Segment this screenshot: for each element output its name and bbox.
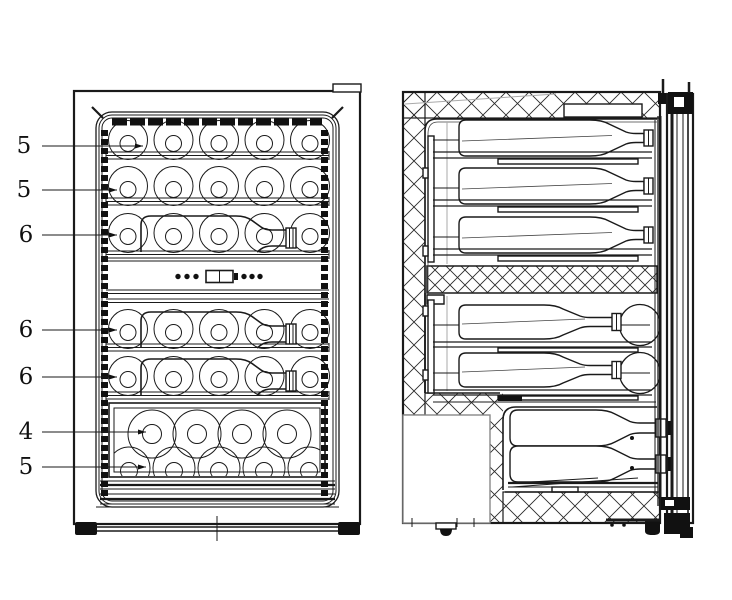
- panel-button[interactable]: [249, 274, 254, 279]
- left-foot: [75, 522, 97, 535]
- interior-lamp: [564, 104, 642, 117]
- wine-cooler-drawing: [0, 0, 732, 600]
- storage-bin: [108, 403, 330, 489]
- cabinet-outline: [74, 84, 361, 524]
- shelf-row-2: [106, 167, 330, 207]
- base-and-feet: [75, 516, 360, 541]
- leader-lines: [42, 144, 146, 470]
- part-label: 5: [11, 175, 37, 205]
- bottle-shelves: [96, 121, 339, 508]
- panel-button[interactable]: [175, 274, 180, 279]
- zone-divider: [427, 266, 657, 293]
- bottom-compartment: [505, 410, 672, 492]
- side-section-view: [403, 79, 693, 538]
- panel-button[interactable]: [184, 274, 189, 279]
- door-bottom-frame: [96, 481, 339, 507]
- panel-button[interactable]: [241, 274, 246, 279]
- figure-canvas: 5 5 6 6 6 4 5: [0, 0, 732, 600]
- lying-bottle: [141, 312, 286, 348]
- shelf-row-5: [106, 357, 330, 401]
- shelf-row-1: [106, 121, 330, 161]
- upper-zone-bottles: [459, 120, 653, 253]
- glass-door[interactable]: [655, 94, 693, 523]
- panel-button[interactable]: [193, 274, 198, 279]
- shelf-row-4: [106, 310, 330, 353]
- part-label: 6: [13, 315, 39, 345]
- part-label: 6: [13, 362, 39, 392]
- right-foot: [338, 522, 360, 535]
- lying-bottle: [141, 216, 286, 252]
- cabinet-foot: [436, 523, 456, 529]
- top-hinge-tab: [333, 84, 361, 92]
- panel-button[interactable]: [257, 274, 262, 279]
- part-label: 5: [13, 452, 39, 482]
- part-label: 5: [11, 131, 37, 161]
- compressor-compartment: [403, 415, 490, 523]
- lying-bottle: [141, 359, 286, 395]
- part-label: 6: [13, 220, 39, 250]
- shelf-row-3: [106, 214, 330, 262]
- control-panel: [106, 271, 329, 303]
- front-view: [74, 84, 361, 541]
- part-label: 4: [13, 417, 39, 447]
